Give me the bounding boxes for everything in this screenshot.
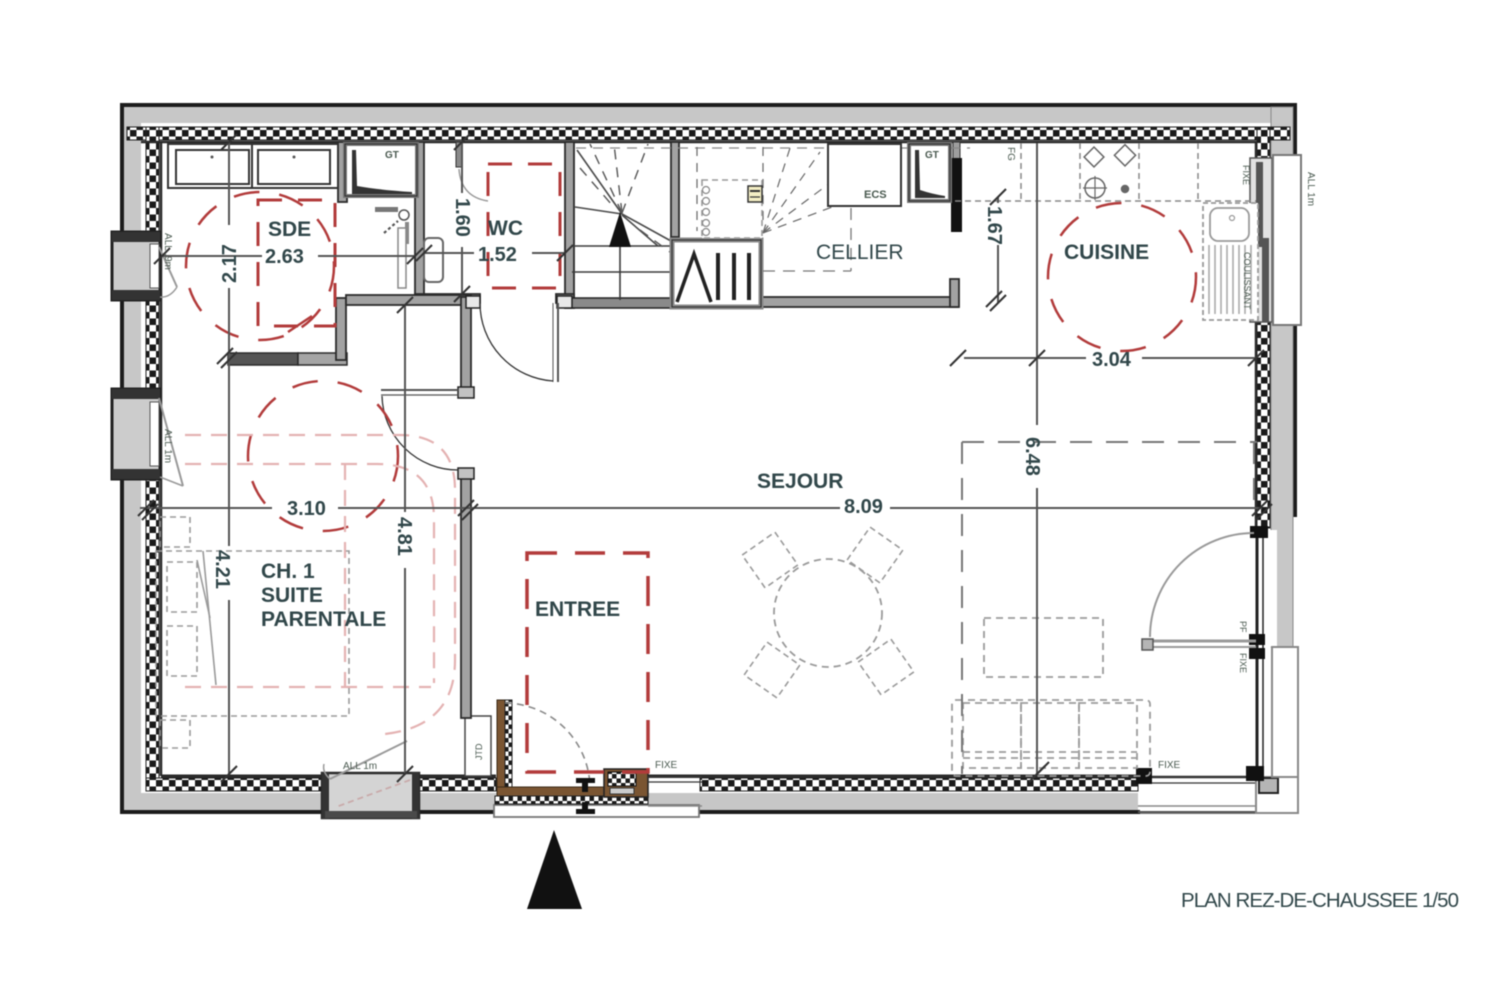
svg-text:ALL 1m: ALL 1m	[162, 429, 173, 463]
svg-text:FIXE: FIXE	[655, 760, 678, 771]
svg-text:GT: GT	[925, 150, 939, 161]
svg-text:PLAN REZ-DE-CHAUSSEE 1/50: PLAN REZ-DE-CHAUSSEE 1/50	[1181, 889, 1459, 912]
svg-text:CELLIER: CELLIER	[816, 241, 904, 264]
svg-text:FG: FG	[1005, 147, 1016, 161]
svg-text:ALL 1m: ALL 1m	[1305, 172, 1316, 206]
svg-text:3.04: 3.04	[1092, 349, 1132, 371]
svg-text:2.17: 2.17	[219, 244, 241, 283]
svg-text:SUITE: SUITE	[261, 584, 323, 607]
svg-text:ALL 1m: ALL 1m	[343, 761, 377, 772]
svg-text:CUISINE: CUISINE	[1064, 241, 1149, 264]
svg-text:6.48: 6.48	[1021, 437, 1043, 476]
svg-text:PARENTALE: PARENTALE	[261, 608, 386, 631]
svg-text:1.67: 1.67	[983, 206, 1005, 245]
svg-text:FIXE: FIXE	[1238, 653, 1248, 673]
svg-text:PF: PF	[1238, 621, 1248, 633]
svg-text:ECS: ECS	[864, 189, 887, 201]
svg-text:GT: GT	[385, 150, 399, 161]
svg-text:FIXE: FIXE	[1158, 760, 1181, 771]
svg-text:8.09: 8.09	[844, 496, 883, 518]
svg-text:WC: WC	[488, 217, 523, 240]
svg-text:1.52: 1.52	[478, 244, 517, 266]
svg-text:CH. 1: CH. 1	[261, 560, 315, 583]
svg-text:SEJOUR: SEJOUR	[757, 470, 843, 493]
svg-text:SDE: SDE	[268, 218, 311, 241]
svg-text:JTD: JTD	[474, 743, 484, 760]
svg-text:ENTREE: ENTREE	[535, 598, 620, 621]
svg-text:4.81: 4.81	[393, 517, 415, 556]
svg-text:2.63: 2.63	[265, 246, 304, 268]
svg-text:1.60: 1.60	[451, 198, 473, 237]
svg-text:FIXE: FIXE	[1241, 165, 1251, 185]
svg-text:4.21: 4.21	[211, 550, 233, 589]
svg-text:COULISSANT: COULISSANT	[1242, 252, 1252, 310]
svg-text:3.10: 3.10	[287, 498, 326, 520]
